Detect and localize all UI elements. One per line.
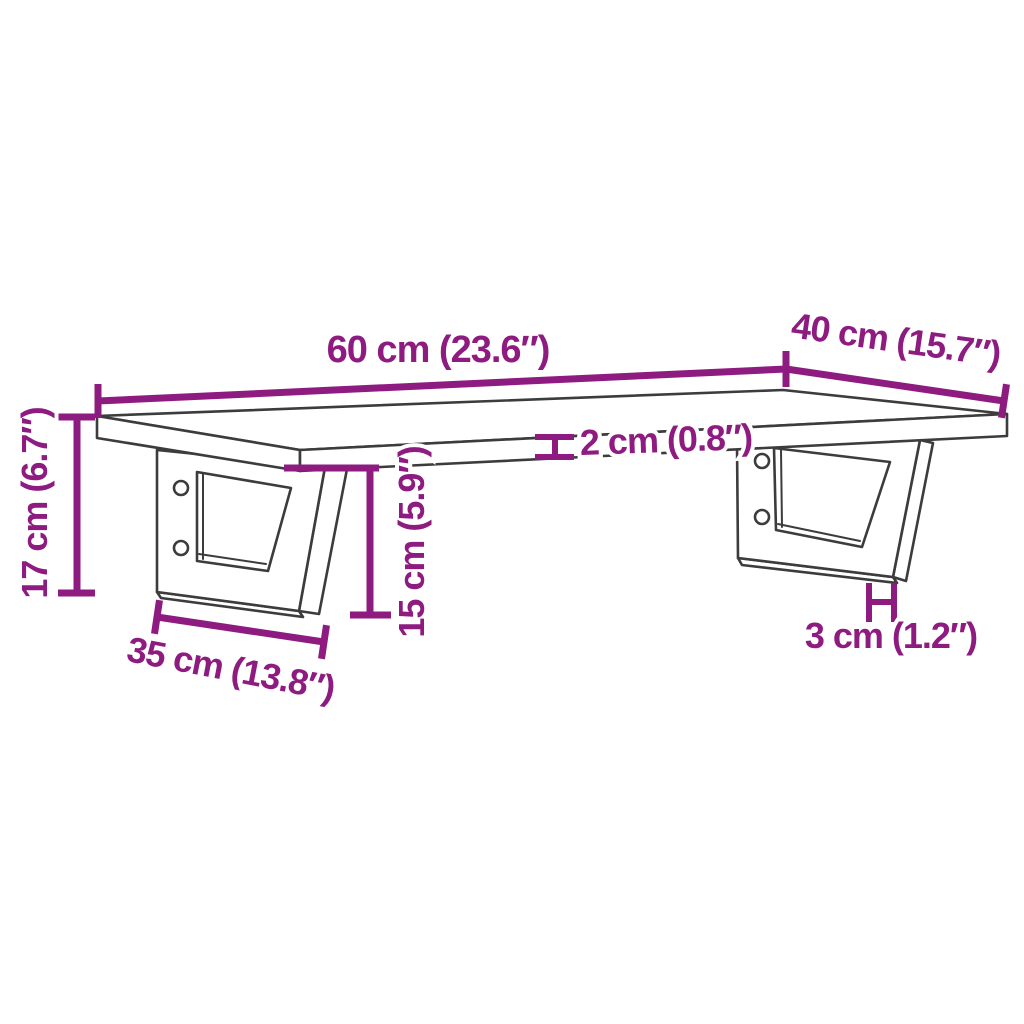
dimension-label-bracket-height: 15 cm (5.9″) <box>391 446 432 637</box>
dimension-tick <box>322 625 327 659</box>
dimension-bracket-bar-width: 3 cm (1.2″) <box>805 583 977 656</box>
left-bracket-screw-hole-top <box>174 481 188 495</box>
dimension-tick <box>155 600 160 634</box>
dimension-label-total-height: 17 cm (6.7″) <box>14 407 55 598</box>
product-dimension-image: { "diagram": { "name": "wall-mounted-she… <box>0 0 1024 1024</box>
right-bracket-plate-edge <box>781 450 782 527</box>
dimension-label-bracket-bar-width: 3 cm (1.2″) <box>805 615 977 656</box>
dimension-bracket-depth: 35 cm (13.8″) <box>124 600 338 708</box>
right-bracket-screw-hole-bottom <box>755 510 769 524</box>
left-bracket-screw-hole-bottom <box>174 541 188 555</box>
dimension-label-shelf-depth: 40 cm (15.7″) <box>789 305 1003 375</box>
right-bracket-screw-hole-top <box>755 454 769 468</box>
left-bracket <box>157 450 347 617</box>
dimension-diagram: 60 cm (23.6″) 40 cm (15.7″) 17 cm (6.7″)… <box>0 0 1024 1024</box>
dimension-total-height: 17 cm (6.7″) <box>14 407 95 598</box>
dimension-tick <box>1002 384 1007 418</box>
right-bracket <box>737 440 933 583</box>
shelf-drawing <box>97 390 1007 617</box>
dimension-label-shelf-thickness: 2 cm (0.8″) <box>579 416 753 463</box>
dimension-label-shelf-width: 60 cm (23.6″) <box>327 329 550 371</box>
